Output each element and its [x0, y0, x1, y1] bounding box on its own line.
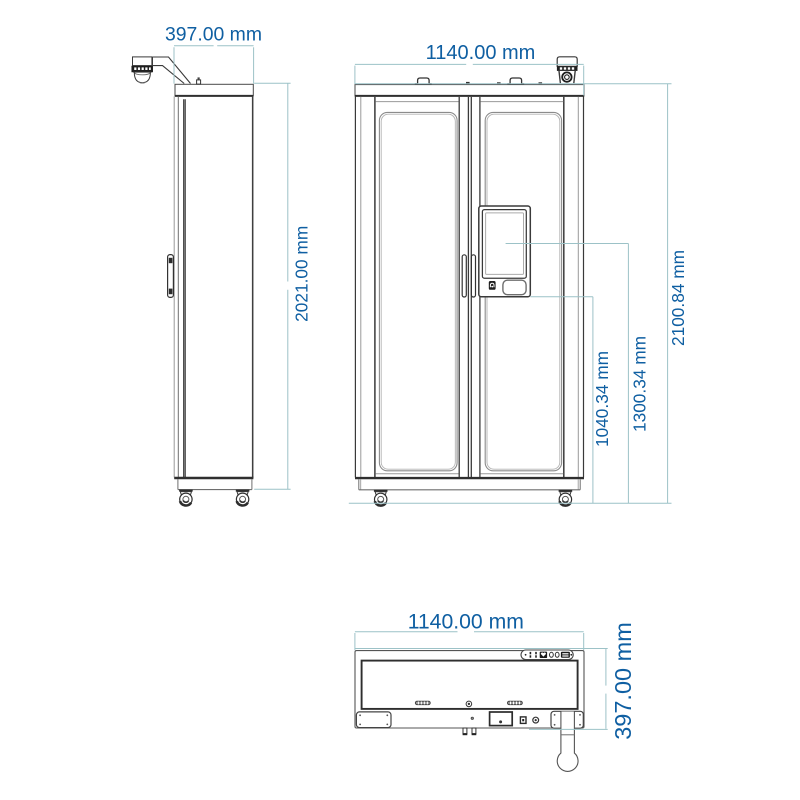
svg-text:1140.00 mm: 1140.00 mm: [408, 610, 524, 633]
svg-text:397.00 mm: 397.00 mm: [165, 24, 262, 46]
svg-text:1040.34 mm: 1040.34 mm: [592, 351, 612, 447]
svg-text:1140.00 mm: 1140.00 mm: [426, 42, 536, 64]
svg-text:397.00 mm: 397.00 mm: [610, 622, 636, 740]
svg-text:2100.84 mm: 2100.84 mm: [668, 250, 688, 346]
svg-text:2021.00 mm: 2021.00 mm: [291, 226, 311, 322]
svg-text:1300.34 mm: 1300.34 mm: [630, 336, 650, 432]
